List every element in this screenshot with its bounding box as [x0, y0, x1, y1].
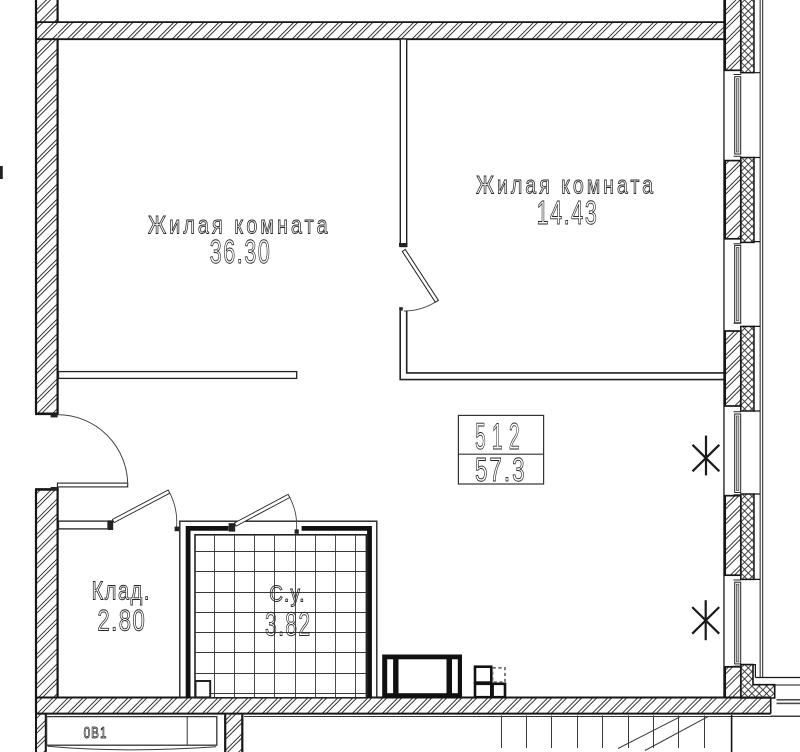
- svg-text:3.82: 3.82: [265, 606, 311, 643]
- svg-text:С.у.: С.у.: [269, 581, 306, 607]
- svg-text:14.43: 14.43: [537, 194, 599, 231]
- svg-text:Клад.: Клад.: [92, 577, 151, 605]
- svg-text:0В1: 0В1: [84, 725, 108, 742]
- svg-text:36.30: 36.30: [210, 233, 272, 270]
- svg-text:57.3: 57.3: [475, 451, 527, 488]
- svg-text:2.80: 2.80: [97, 604, 146, 637]
